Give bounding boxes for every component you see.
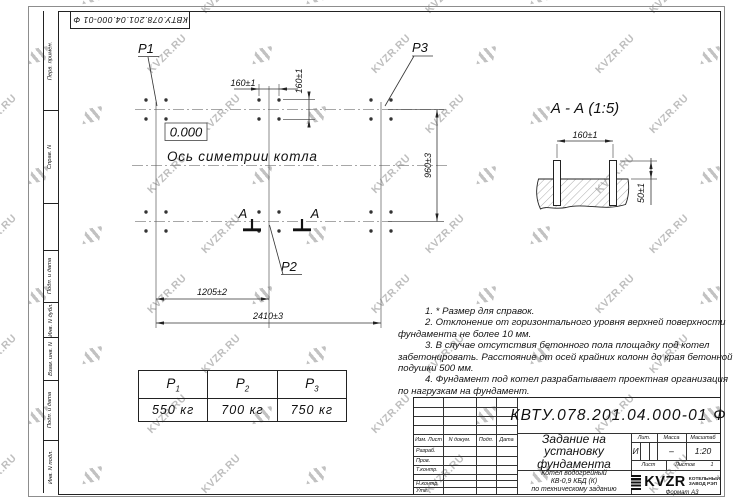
tb-row-nkontr: Н.контр. bbox=[414, 480, 443, 487]
tb-lit-label: Лит. bbox=[631, 433, 657, 442]
tb-doc-number: КВТУ.078.201.04.000-01 Ф bbox=[517, 398, 720, 433]
weights-header-p1: Р1 bbox=[139, 371, 208, 399]
tb-row-razrab: Разраб. bbox=[414, 446, 443, 456]
sidebar-cell-podp-data-1: Подп. и дата bbox=[43, 250, 58, 302]
tb-scale-label: Масштаб bbox=[686, 433, 720, 442]
kvzr-logo-caption: КОТЕЛЬНЫЙ ЗАВОД РЭП bbox=[689, 477, 720, 488]
weights-value-p2: 700 кг bbox=[208, 398, 277, 421]
sidebar-cell-sprav-n: Справ. N bbox=[43, 110, 58, 203]
tb-col-izm-list: Изм. Лист bbox=[414, 434, 443, 446]
sidebar-cell-podp-data-2: Подп. и дата bbox=[43, 380, 58, 440]
kvzr-emblem-icon bbox=[631, 475, 641, 490]
tb-title: Задание на установку фундамента bbox=[517, 433, 631, 470]
tb-subtitle: Котел водогрейный КВ-0,9 КБД (К) по техн… bbox=[517, 470, 631, 494]
tb-scale-value: 1:20 bbox=[686, 442, 720, 460]
weights-value-p3: 750 кг bbox=[277, 398, 346, 421]
note-line: подушки 500 мм. bbox=[398, 363, 713, 374]
tb-mass-value: – bbox=[657, 442, 686, 460]
tb-mass-label: Масса bbox=[657, 433, 686, 442]
sidebar-cell-vzam-inv: Взам. инв. N bbox=[43, 337, 58, 380]
weights-table-header-row: Р1 Р2 Р3 bbox=[139, 371, 347, 399]
weights-table: Р1 Р2 Р3 550 кг 700 кг 750 кг bbox=[138, 370, 347, 422]
note-line: 1. * Размер для справок. bbox=[398, 306, 713, 317]
tb-lit-value: И bbox=[631, 442, 640, 460]
top-stamp-box: КВТУ.078.201.04.000-01 Ф bbox=[70, 11, 190, 29]
tb-row-prov: Пров. bbox=[414, 456, 443, 465]
note-line: по нагрузкам на фундамент. bbox=[398, 386, 713, 397]
note-line: 2. Отклонение от горизонтального уровня … bbox=[398, 317, 713, 328]
tb-sheets-label: Листов bbox=[666, 460, 704, 470]
tb-row-utv: Утв. bbox=[414, 487, 443, 494]
sidebar-cell-inv-podl: Инв. N подл. bbox=[43, 440, 58, 493]
note-line: забетонировать. Расстояние от осей крайн… bbox=[398, 352, 713, 363]
sidebar-cell-perv-primen: Перв. примен. bbox=[43, 11, 58, 110]
note-line: фундамента не более 10 мм. bbox=[398, 329, 713, 340]
title-block: Изм. Лист N докум. Подп. Дата Разраб. Пр… bbox=[413, 397, 721, 495]
top-stamp-docnumber: КВТУ.078.201.04.000-01 Ф bbox=[73, 15, 188, 25]
weights-header-p2: Р2 bbox=[208, 371, 277, 399]
drawing-sheet: KVZR.RUKVZR.RUKVZR.RUKVZR.RUKVZR.RUKVZR.… bbox=[0, 0, 750, 500]
note-line: 4. Фундамент под котел разрабатывает про… bbox=[398, 374, 713, 385]
tb-sheet-label: Лист bbox=[631, 460, 666, 470]
sidebar-cell-inv-dubl: Инв. N дубл. bbox=[43, 302, 58, 337]
tb-col-ndocum: N докум. bbox=[443, 434, 476, 446]
format-label: Формат А3 bbox=[632, 490, 732, 496]
tb-col-data: Дата bbox=[496, 434, 517, 446]
weights-header-p3: Р3 bbox=[277, 371, 346, 399]
sidebar-divider bbox=[43, 203, 58, 204]
kvzr-logo-text: KVZR bbox=[644, 474, 685, 490]
weights-value-p1: 550 кг bbox=[139, 398, 208, 421]
note-line: 3. В случае отсутствия бетонного пола пл… bbox=[398, 340, 713, 351]
notes: 1. * Размер для справок. 2. Отклонение о… bbox=[398, 306, 713, 397]
tb-col-podp: Подп. bbox=[476, 434, 496, 446]
tb-sheets-value: 1 bbox=[704, 460, 720, 470]
tb-row-tkontr: Т.контр. bbox=[414, 465, 443, 474]
weights-table-value-row: 550 кг 700 кг 750 кг bbox=[139, 398, 347, 421]
